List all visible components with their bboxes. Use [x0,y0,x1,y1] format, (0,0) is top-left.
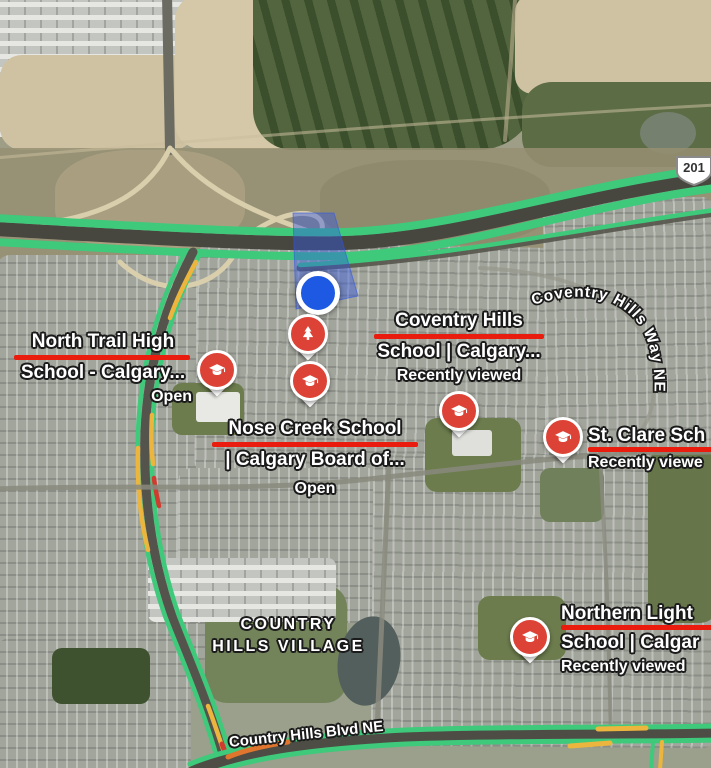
area-label-country-hills-village: COUNTRY HILLS VILLAGE [196,614,381,658]
highlight-underline [374,334,544,339]
school-pin-st-clare[interactable] [543,417,583,457]
place-label-st-clare[interactable]: St. Clare Sch Recently viewe [588,425,711,472]
place-name-line1: St. Clare Sch [588,425,711,446]
graduation-cap-icon [510,617,550,657]
place-name-line1: Northern Light [561,603,711,624]
highlight-underline [561,625,711,630]
blue-location-dot[interactable] [296,271,340,315]
place-name-line2: School | Calgar [561,632,711,653]
place-label-nose-creek[interactable]: Nose Creek School | Calgary Board of... … [212,418,418,498]
place-status: Recently viewed [366,366,552,385]
shield-number: 201 [683,160,705,175]
school-pin-nose-creek[interactable] [290,361,330,401]
place-name-line2: School - Calgary... [8,362,198,383]
park-pin[interactable] [288,314,328,354]
place-label-northern-lights[interactable]: Northern Light School | Calgar Recently … [561,603,711,676]
graduation-cap-icon [543,417,583,457]
pine-tree-icon [288,314,328,354]
place-name-line1: Nose Creek School [212,418,418,439]
place-status: Recently viewe [588,453,711,472]
highlight-underline [14,355,190,360]
place-name-line1: North Trail High [8,331,198,352]
place-name-line2: | Calgary Board of... [212,449,418,470]
highlight-underline [588,447,711,452]
place-status: Open [212,479,418,498]
graduation-cap-icon [439,391,479,431]
place-label-coventry-hills[interactable]: Coventry Hills School | Calgary... Recen… [366,310,552,385]
graduation-cap-icon [290,361,330,401]
place-status: Recently viewed [561,657,711,676]
place-status: Open [8,387,198,406]
place-name-line1: Coventry Hills [366,310,552,331]
school-pin-north-trail[interactable] [197,350,237,390]
place-label-north-trail[interactable]: North Trail High School - Calgary... Ope… [8,331,198,406]
area-label-line2: HILLS VILLAGE [196,636,381,658]
map-canvas[interactable]: Coventry Hills Way NE North Trail High S… [0,0,711,768]
school-pin-northern-lights[interactable] [510,617,550,657]
graduation-cap-icon [197,350,237,390]
highway-shield-201: 201 [674,155,711,193]
highlight-underline [212,442,418,447]
school-pin-coventry-hills[interactable] [439,391,479,431]
area-label-line1: COUNTRY [196,614,381,636]
place-name-line2: School | Calgary... [366,341,552,362]
